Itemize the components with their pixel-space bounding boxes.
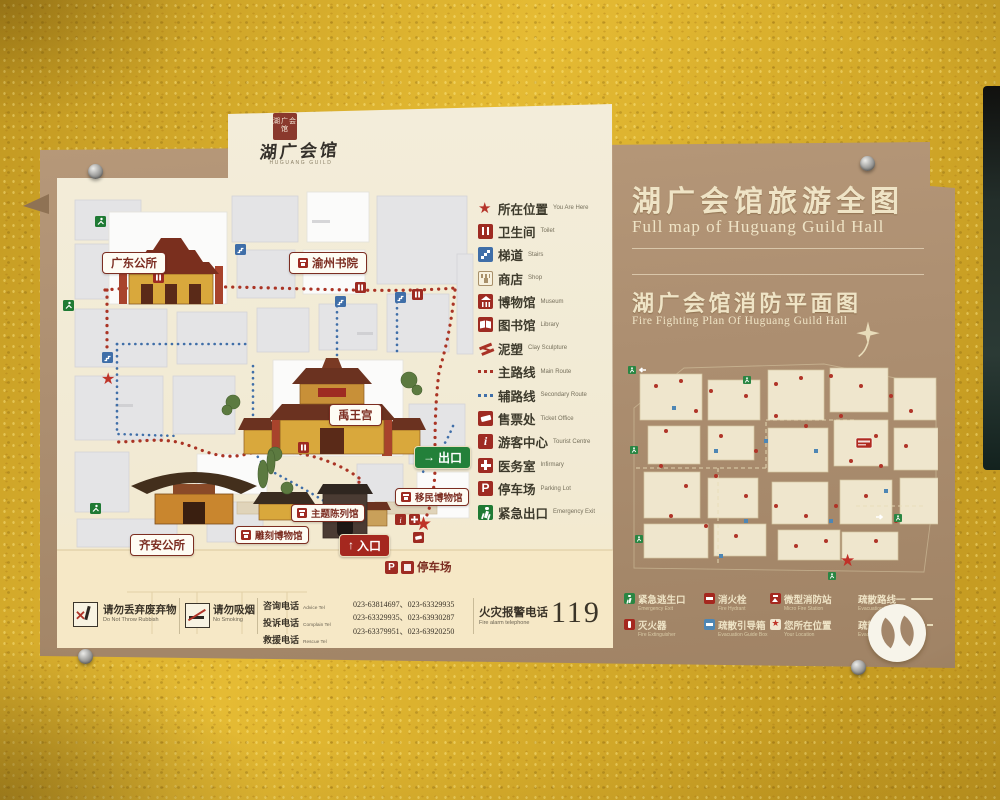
- no-littering-icon: [73, 602, 98, 627]
- svg-text:★: ★: [415, 514, 432, 535]
- arrow-up-icon: ↑: [348, 538, 354, 553]
- legend-item: 泥塑Clay Sculpture: [478, 340, 612, 356]
- ticket-office-icon: [478, 411, 493, 426]
- stairs-icon: [478, 247, 493, 262]
- legend-item: 梯道Stairs: [478, 247, 612, 263]
- legend-item: 游客中心Tourist Centre: [478, 434, 612, 450]
- sign-board: 湖广会馆 湖广会馆 HUGUANG GUILD i: [40, 142, 955, 668]
- museum-icon: [478, 294, 493, 309]
- screw: [78, 649, 93, 664]
- leaf-emblem: [868, 604, 926, 662]
- no-smoking-notice: 请勿吸烟 No Smoking: [213, 602, 255, 623]
- map-label-carving: 雕刻博物馆: [235, 526, 309, 544]
- info-icon: [478, 434, 493, 449]
- museum-icon: [401, 492, 411, 502]
- parking-marker: 停车场: [385, 559, 452, 575]
- emergency-exit-icon: [478, 505, 493, 520]
- entrance-badge: ↑入口: [339, 534, 390, 557]
- fire-plan-map: ★: [626, 356, 938, 582]
- map-legend: 所在位置You Are Here 卫生间Toilet 梯道Stairs 商店Sh…: [478, 200, 612, 520]
- fire-plan-title-en: Fire Fighting Plan Of Huguang Guild Hall: [632, 315, 848, 327]
- shop-icon: [478, 271, 493, 286]
- parking-attendant-icon: [401, 561, 414, 574]
- fire-plan-title-cn: 湖广会馆消防平面图: [632, 286, 862, 318]
- info-panel: 湖广会馆旅游全图 Full map of Huguang Guild Hall …: [618, 160, 940, 654]
- phone-numbers: 023-63814697、023-63329935 023-63329935、0…: [353, 598, 454, 638]
- info-strip: 请勿丢弃废弃物 Do Not Throw Rubbish 请勿吸烟 No Smo…: [65, 594, 613, 646]
- map-panel: 湖广会馆 湖广会馆 HUGUANG GUILD i: [57, 104, 613, 650]
- legend-item: 所在位置You Are Here: [478, 200, 612, 216]
- library-icon: [298, 258, 308, 268]
- no-smoking-icon: [185, 603, 210, 628]
- no-littering-notice: 请勿丢弃废弃物 Do Not Throw Rubbish: [103, 602, 177, 623]
- map-label-theme: 主题陈列馆: [291, 504, 365, 522]
- emergency-escape-icon: [624, 593, 635, 604]
- fire-station-icon: [770, 593, 781, 604]
- legend-item: 博物馆Museum: [478, 294, 612, 310]
- museum-icon: [297, 508, 307, 518]
- fire-legend-item: 灭火器Fire Extinguisher: [624, 618, 702, 644]
- legend-item: 辅路线Secondary Route: [478, 387, 612, 403]
- parking-icon: [385, 561, 398, 574]
- phone-labels: 咨询电话 Advice Tel 投诉电话 Complain Tel 救援电话 R…: [263, 598, 331, 649]
- board-corner-tab: [23, 194, 49, 214]
- fire-legend-item: 疏散引导箱Evacuation Guide Box: [704, 618, 768, 644]
- legend-item: 售票处Ticket Office: [478, 411, 612, 427]
- first-aid-cross-icon: [478, 458, 493, 473]
- clay-sculpture-icon: [478, 341, 493, 356]
- svg-text:★: ★: [101, 371, 115, 388]
- arrow-right-icon: →: [423, 450, 435, 465]
- fire-phone-number: 119: [551, 596, 601, 630]
- toilet-icon: [478, 224, 493, 239]
- museum-icon: [241, 530, 251, 540]
- fire-legend-item: 微型消防站Micro Fire Station: [770, 592, 856, 618]
- panel-title-cn: 湖广会馆旅游全图: [632, 178, 904, 220]
- legend-item: 主路线Main Route: [478, 364, 612, 380]
- location-star-icon: [770, 619, 781, 630]
- exit-badge: →出口: [414, 446, 471, 469]
- screw: [88, 164, 103, 179]
- star-icon: [478, 201, 493, 216]
- fire-phone-label: 火灾报警电话 Fire alarm telephone: [479, 604, 548, 626]
- evacuation-guide-box-icon: [704, 619, 715, 630]
- legend-item: 停车场Parking Lot: [478, 481, 612, 497]
- parking-icon: [478, 481, 493, 496]
- map-label-qian: 齐安公所: [130, 534, 194, 556]
- screw: [860, 156, 875, 171]
- legend-item: 紧急出口Emergency Exit: [478, 504, 612, 520]
- you-are-here-star: ★: [840, 551, 855, 570]
- fire-legend-item: 您所在位置Your Location: [770, 618, 856, 644]
- fire-legend-item: 消火栓Fire Hydrant: [704, 592, 768, 618]
- fire-hydrant-icon: [704, 593, 715, 604]
- fire-extinguisher-icon: [624, 619, 635, 630]
- compass-leaf-icon: [854, 320, 882, 358]
- legend-item: 图书馆Library: [478, 317, 612, 333]
- library-icon: [478, 317, 493, 332]
- legend-item: 医务室Infirmary: [478, 457, 612, 473]
- screw: [851, 660, 866, 675]
- micro-fire-station-badge: [856, 438, 872, 448]
- route-line-solid-icon: [911, 598, 933, 600]
- panel-title-en: Full map of Huguang Guild Hall: [632, 217, 884, 237]
- legend-item: 商店Shop: [478, 270, 612, 286]
- map-label-guangdong: 广东公所: [102, 252, 166, 274]
- map-label-yuwang: 禹王宫: [329, 404, 382, 426]
- fire-legend-item: 紧急逃生口Emergency Exit: [624, 592, 702, 618]
- map-label-yuzhou: 渝州书院: [289, 252, 367, 274]
- background-dark-object: [983, 86, 1000, 470]
- main-route-icon: [478, 364, 493, 379]
- secondary-route-icon: [478, 388, 493, 403]
- map-label-migration: 移民博物馆: [395, 488, 469, 506]
- legend-item: 卫生间Toilet: [478, 223, 612, 239]
